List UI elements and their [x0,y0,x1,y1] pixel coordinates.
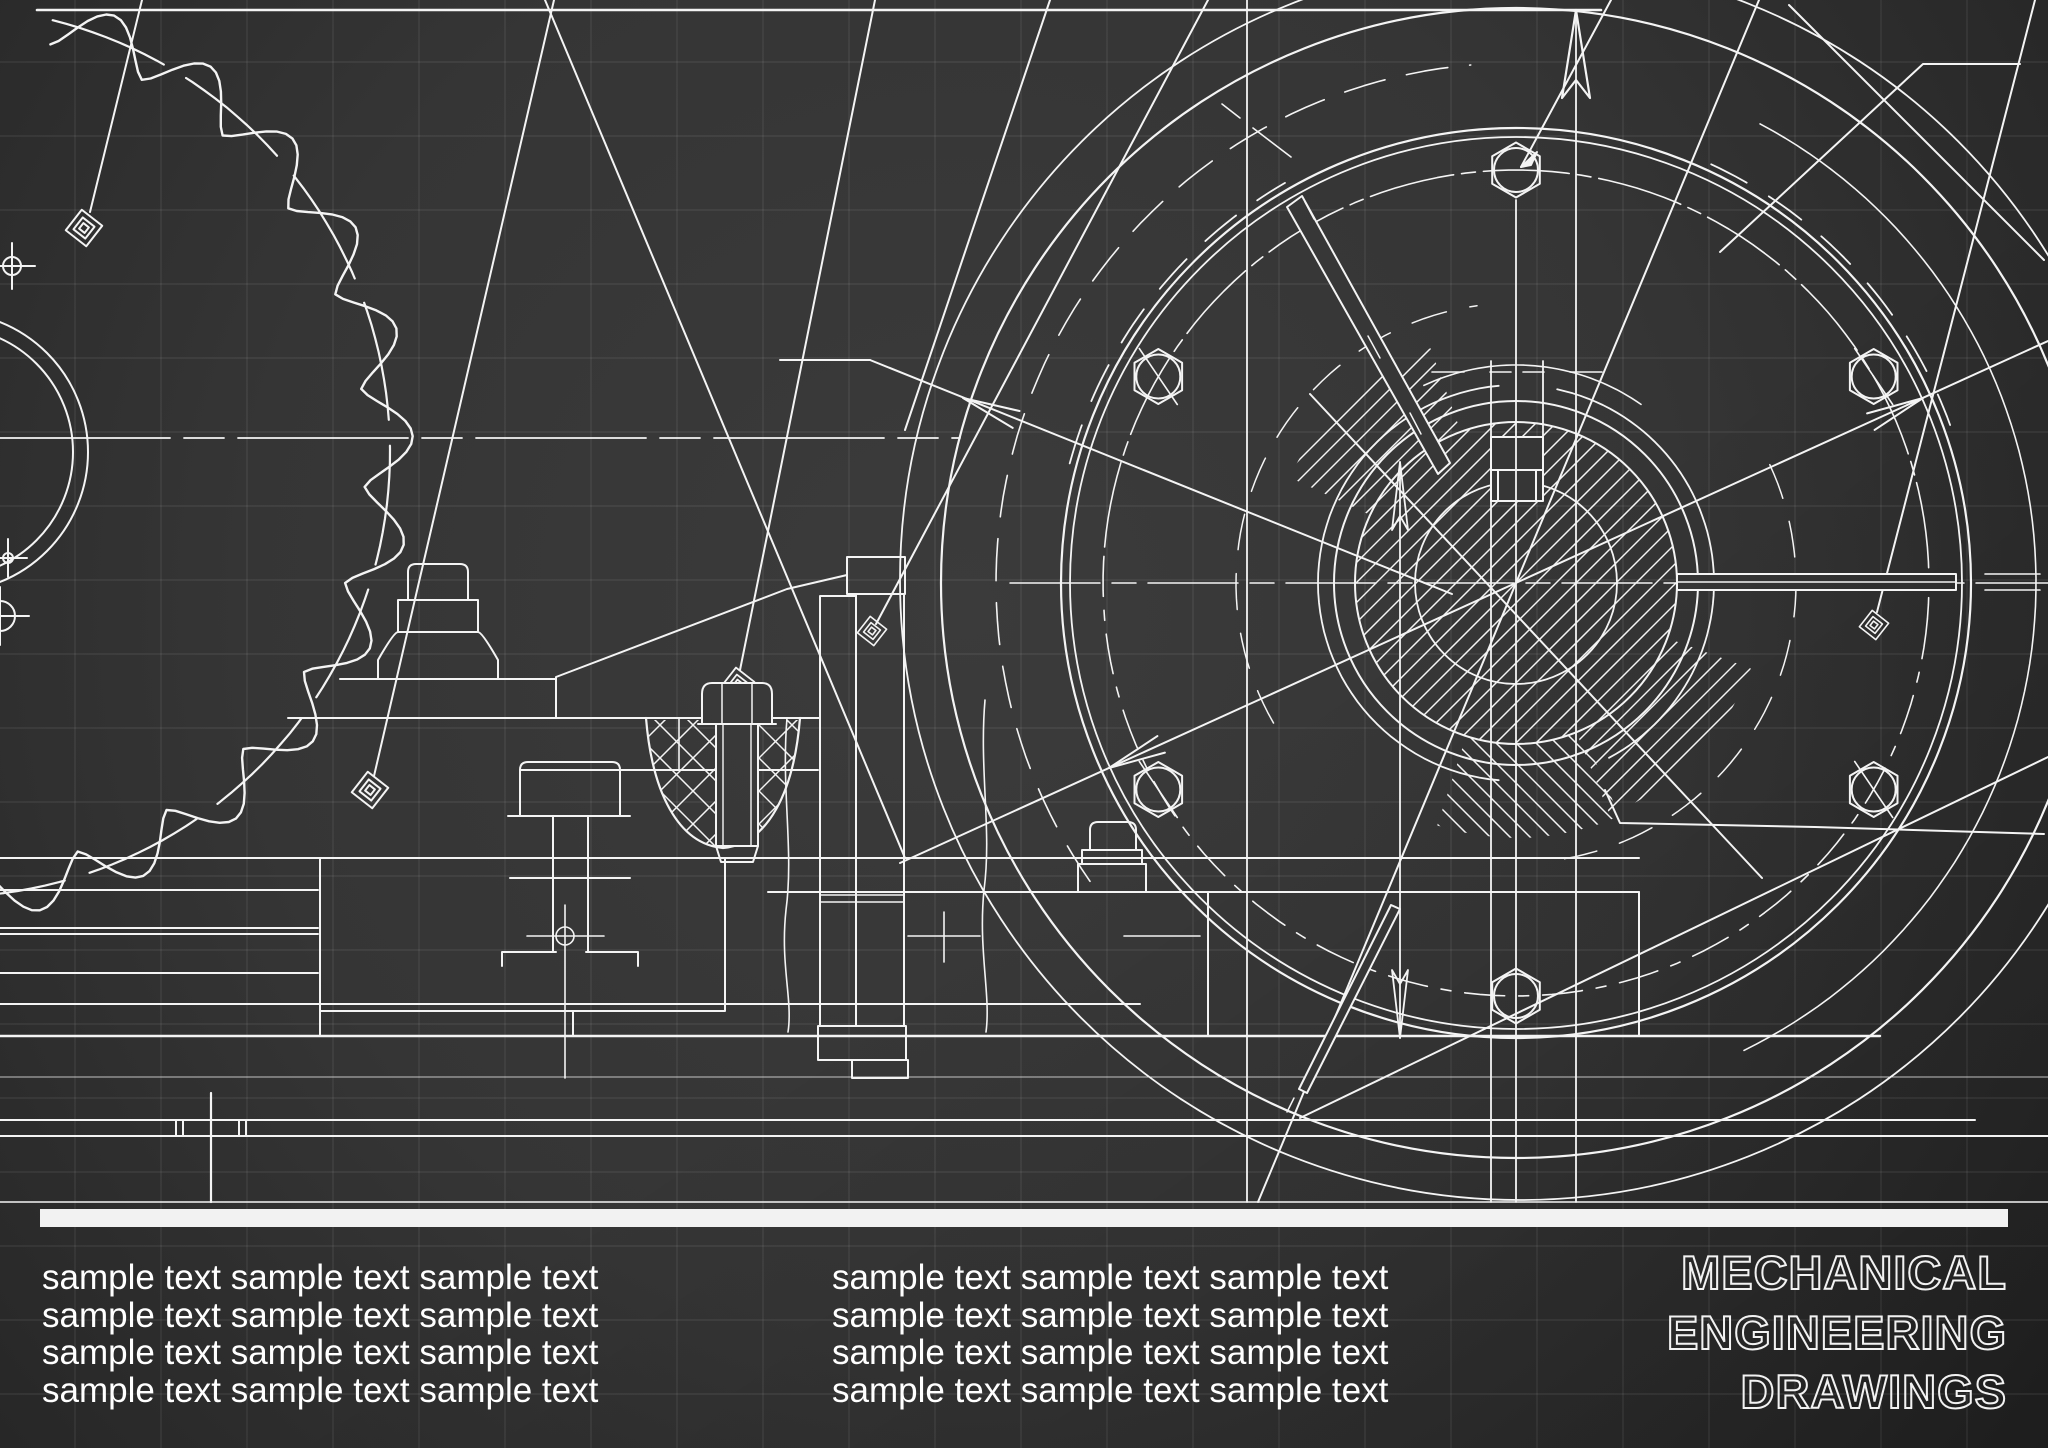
svg-text:MECHANICAL: MECHANICAL [1681,1246,2007,1299]
svg-text:sample text sample text sample: sample text sample text sample text [42,1296,599,1335]
svg-text:sample text sample text sample: sample text sample text sample text [832,1296,1389,1335]
svg-text:sample text sample text sample: sample text sample text sample text [832,1371,1389,1410]
svg-text:DRAWINGS: DRAWINGS [1741,1365,2008,1418]
svg-text:ENGINEERING: ENGINEERING [1667,1306,2007,1359]
svg-text:sample text sample text sample: sample text sample text sample text [42,1371,599,1410]
svg-text:sample text sample text sample: sample text sample text sample text [42,1333,599,1372]
svg-text:sample text sample text sample: sample text sample text sample text [832,1258,1389,1297]
svg-text:sample text sample text sample: sample text sample text sample text [832,1333,1389,1372]
svg-text:sample text sample text sample: sample text sample text sample text [42,1258,599,1297]
